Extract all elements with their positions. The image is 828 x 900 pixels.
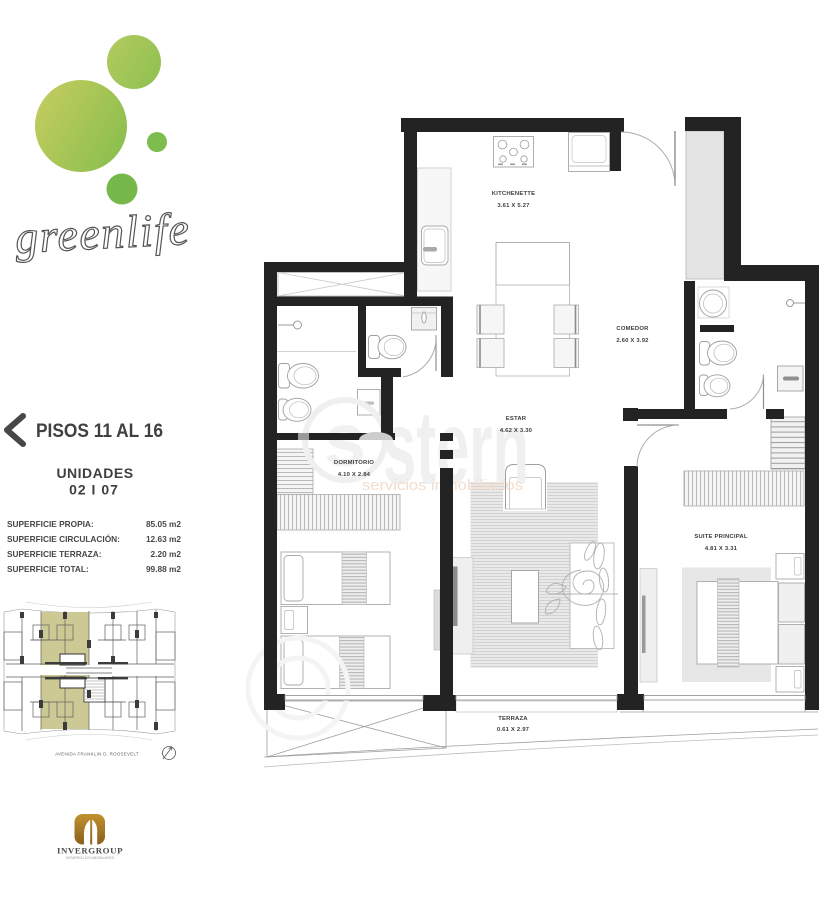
svg-text:2.20 m2: 2.20 m2 xyxy=(151,549,182,559)
svg-text:DESARROLLOS INMOBILIARIOS: DESARROLLOS INMOBILIARIOS xyxy=(66,856,114,860)
svg-text:85.05 m2: 85.05 m2 xyxy=(146,519,181,529)
svg-text:12.63 m2: 12.63 m2 xyxy=(146,534,181,544)
svg-text:greenlife: greenlife xyxy=(14,203,192,263)
svg-text:0.61 X 2.97: 0.61 X 2.97 xyxy=(497,727,530,733)
svg-text:COMEDOR: COMEDOR xyxy=(616,326,649,332)
svg-text:SUPERFICIE CIRCULACIÓN:: SUPERFICIE CIRCULACIÓN: xyxy=(7,533,120,544)
svg-text:3.61 X 5.27: 3.61 X 5.27 xyxy=(497,203,530,209)
svg-text:2.60 X 3.92: 2.60 X 3.92 xyxy=(616,338,649,344)
svg-text:4.10 X 2.84: 4.10 X 2.84 xyxy=(338,472,371,478)
svg-text:UNIDADES: UNIDADES xyxy=(56,465,133,481)
svg-text:TERRAZA: TERRAZA xyxy=(498,716,528,722)
svg-text:PISOS 11 AL 16: PISOS 11 AL 16 xyxy=(36,421,163,442)
svg-text:INVERGROUP: INVERGROUP xyxy=(57,846,123,856)
svg-text:02 I 07: 02 I 07 xyxy=(69,482,119,498)
svg-text:SUITE PRINCIPAL: SUITE PRINCIPAL xyxy=(694,534,747,540)
svg-text:SUPERFICIE TERRAZA:: SUPERFICIE TERRAZA: xyxy=(7,549,102,559)
svg-text:ESTAR: ESTAR xyxy=(506,416,527,422)
svg-text:4.62 X 3.30: 4.62 X 3.30 xyxy=(500,428,533,434)
svg-text:KITCHENETTE: KITCHENETTE xyxy=(492,191,535,197)
svg-text:DORMITORIO: DORMITORIO xyxy=(334,460,374,466)
svg-text:99.88 m2: 99.88 m2 xyxy=(146,564,181,574)
svg-text:AVENIDA FRANKLIN D. ROOSEVELT: AVENIDA FRANKLIN D. ROOSEVELT xyxy=(55,752,139,757)
svg-text:SUPERFICIE PROPIA:: SUPERFICIE PROPIA: xyxy=(7,519,94,529)
svg-text:SUPERFICIE TOTAL:: SUPERFICIE TOTAL: xyxy=(7,564,89,574)
svg-text:4.81 X 3.31: 4.81 X 3.31 xyxy=(705,546,738,552)
